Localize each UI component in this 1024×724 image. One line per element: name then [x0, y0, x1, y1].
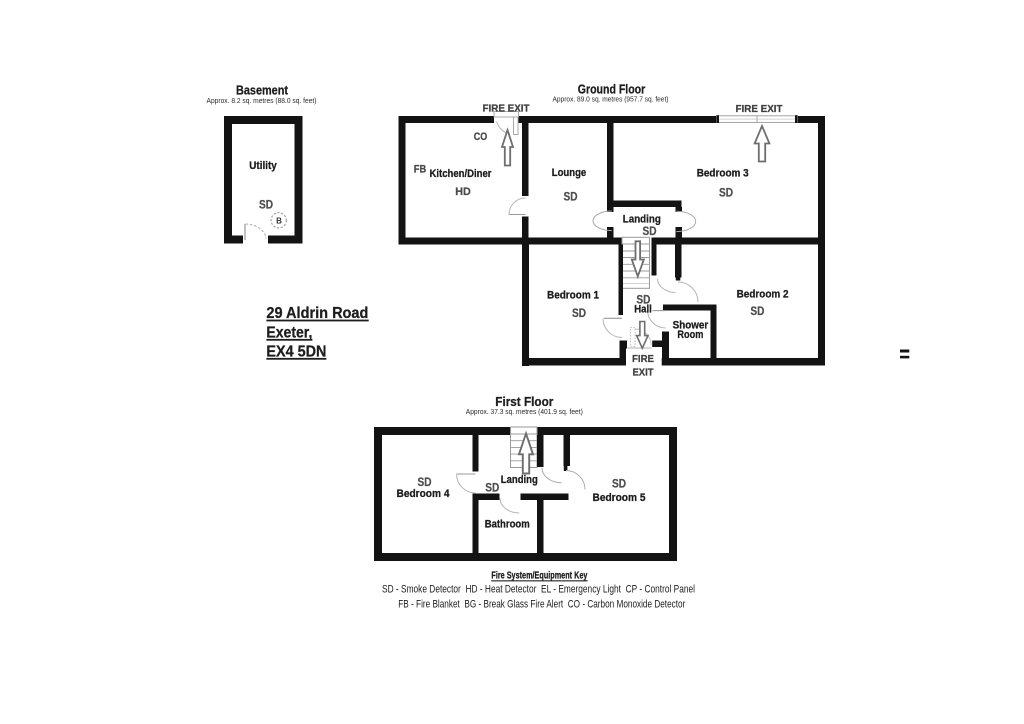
svg-text:Fire System/Equipment Key: Fire System/Equipment Key — [491, 571, 587, 582]
svg-text:29 Aldrin Road: 29 Aldrin Road — [266, 305, 368, 322]
svg-text:FB: FB — [414, 164, 427, 176]
svg-text:Bedroom 5: Bedroom 5 — [593, 492, 646, 504]
svg-text:SD: SD — [750, 304, 764, 318]
svg-text:SD: SD — [643, 224, 657, 238]
svg-text:SD: SD — [485, 481, 499, 495]
svg-text:FB - Fire Blanket BG - Break: FB - Fire Blanket BG - Break Glass Fire … — [398, 599, 685, 611]
svg-text:Bedroom 2: Bedroom 2 — [737, 289, 789, 301]
svg-text:Room: Room — [677, 329, 703, 341]
svg-text:Bedroom 3: Bedroom 3 — [697, 168, 749, 180]
svg-text:SD: SD — [259, 198, 273, 212]
svg-text:B: B — [276, 217, 282, 226]
svg-text:SD: SD — [564, 189, 578, 203]
svg-text:Bedroom 4: Bedroom 4 — [397, 488, 451, 500]
svg-text:Kitchen/Diner: Kitchen/Diner — [430, 168, 493, 180]
svg-text:SD - Smoke Detector HD - Heat: SD - Smoke Detector HD - Heat Detector E… — [382, 584, 695, 596]
svg-text:Hall: Hall — [634, 303, 652, 315]
svg-text:EXIT: EXIT — [633, 368, 654, 379]
svg-text:Utility: Utility — [249, 160, 277, 172]
svg-text:HD: HD — [455, 186, 471, 198]
svg-text:FIRE: FIRE — [632, 354, 654, 365]
svg-text:Bathroom: Bathroom — [485, 519, 530, 531]
svg-text:EX4 5DN: EX4 5DN — [266, 343, 326, 360]
svg-text:FIRE EXIT: FIRE EXIT — [483, 104, 530, 115]
svg-text:SD: SD — [719, 186, 733, 200]
svg-text:CO: CO — [474, 131, 488, 143]
svg-text:SD: SD — [612, 477, 626, 491]
svg-text:Lounge: Lounge — [552, 167, 587, 179]
svg-text:Approx. 37.3 sq. metres (401.9: Approx. 37.3 sq. metres (401.9 sq. feet) — [466, 407, 583, 416]
svg-text:Landing: Landing — [501, 474, 538, 486]
svg-text:Approx. 8.2 sq. metres (88.0 s: Approx. 8.2 sq. metres (88.0 sq. feet) — [207, 96, 317, 105]
svg-text:Exeter,: Exeter, — [266, 324, 312, 341]
svg-text:FIRE EXIT: FIRE EXIT — [736, 104, 783, 115]
svg-text:Bedroom 1: Bedroom 1 — [547, 289, 599, 301]
svg-text:Approx. 89.0 sq. metres (957.7: Approx. 89.0 sq. metres (957.7 sq. feet) — [553, 95, 669, 104]
svg-text:SD: SD — [572, 306, 586, 320]
